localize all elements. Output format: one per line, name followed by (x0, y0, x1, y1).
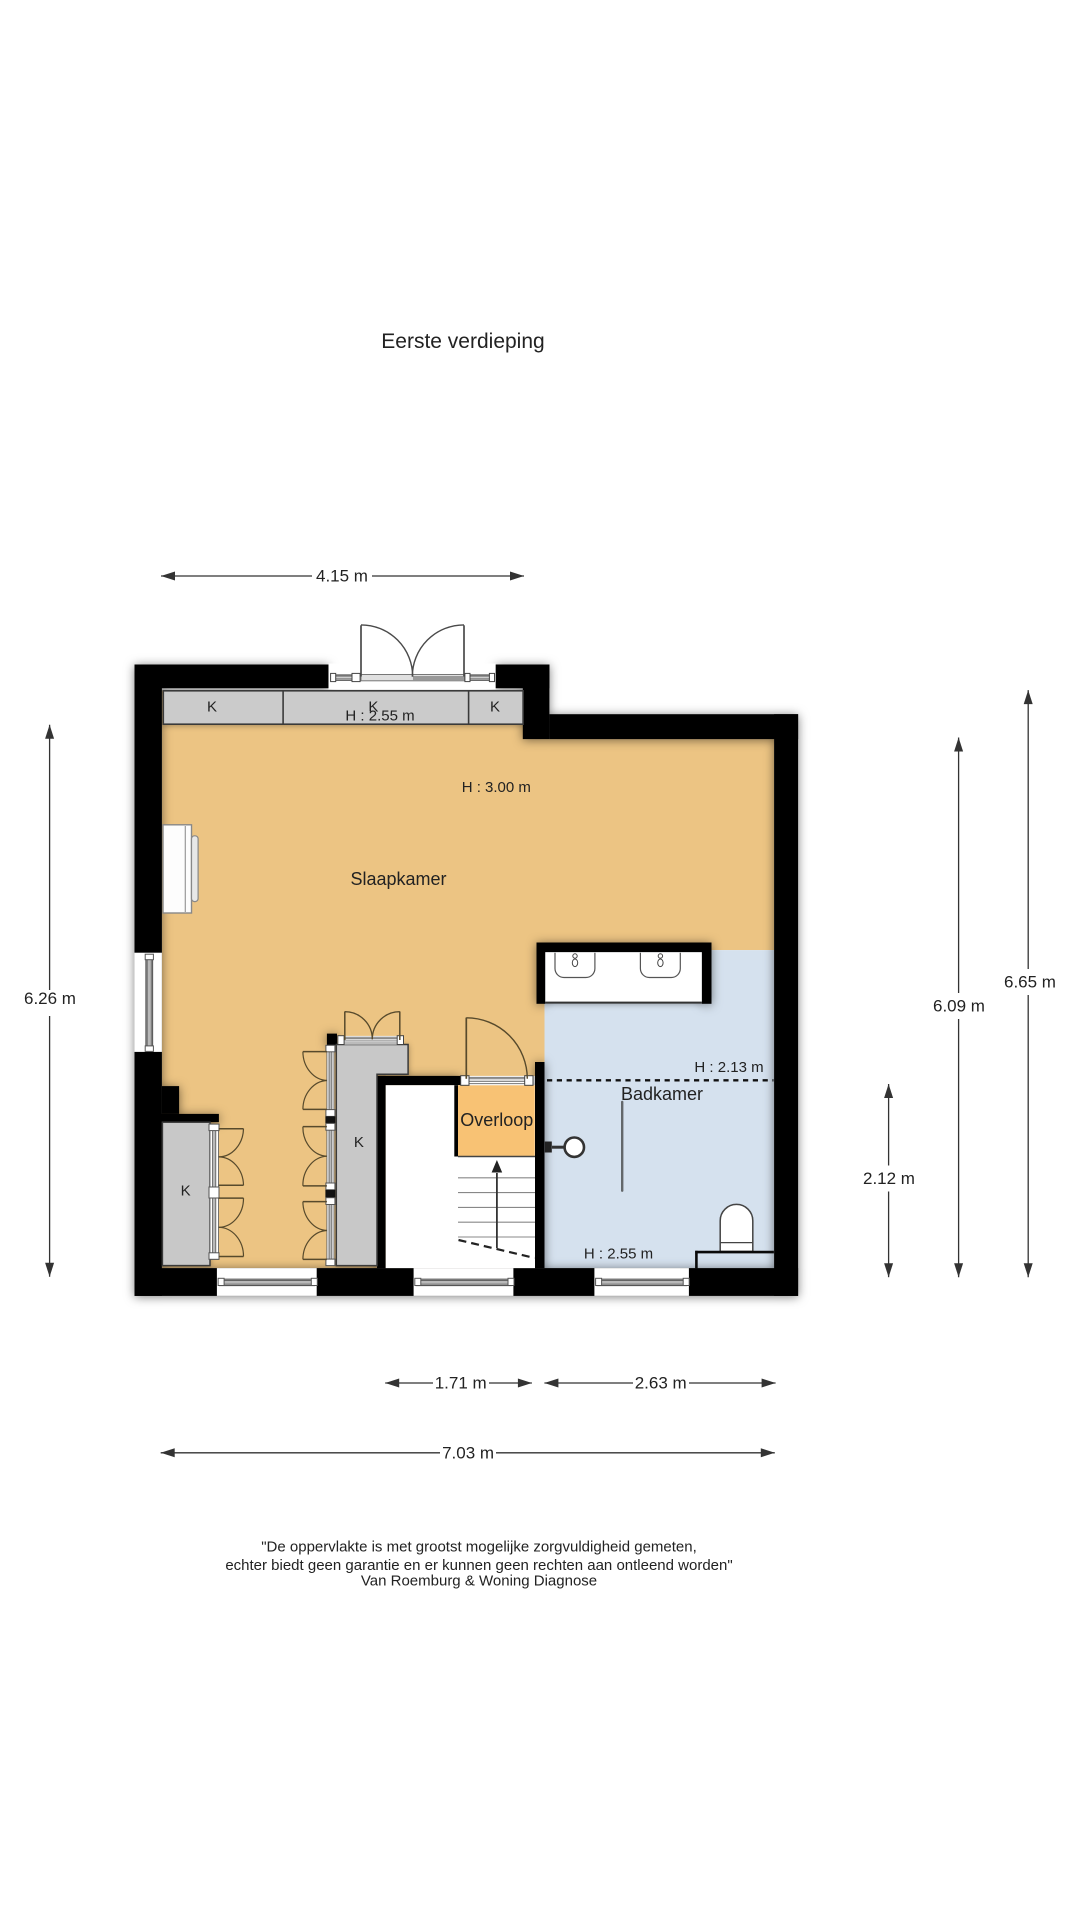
svg-text:2.12 m: 2.12 m (863, 1169, 915, 1188)
svg-text:Van Roemburg & Woning Diagnose: Van Roemburg & Woning Diagnose (361, 1573, 597, 1590)
svg-text:H : 2.55 m: H : 2.55 m (345, 707, 414, 724)
svg-text:6.09 m: 6.09 m (933, 997, 985, 1016)
svg-text:1.71 m: 1.71 m (435, 1374, 487, 1393)
svg-text:K: K (207, 698, 217, 715)
svg-text:6.65 m: 6.65 m (1004, 973, 1056, 992)
svg-text:Eerste verdieping: Eerste verdieping (381, 330, 544, 353)
svg-text:K: K (181, 1182, 191, 1199)
svg-text:K: K (354, 1134, 364, 1151)
svg-text:Badkamer: Badkamer (621, 1084, 703, 1104)
svg-text:H : 2.13 m: H : 2.13 m (694, 1059, 763, 1076)
svg-text:H : 3.00 m: H : 3.00 m (462, 779, 531, 796)
svg-text:H : 2.55 m: H : 2.55 m (584, 1245, 653, 1262)
svg-text:K: K (490, 698, 500, 715)
svg-text:"De oppervlakte is met grootst: "De oppervlakte is met grootst mogelijke… (261, 1539, 697, 1556)
svg-text:Slaapkamer: Slaapkamer (350, 869, 446, 889)
svg-text:7.03 m: 7.03 m (442, 1443, 494, 1462)
svg-text:echter biedt geen garantie en: echter biedt geen garantie en er kunnen … (225, 1557, 732, 1574)
svg-text:4.15 m: 4.15 m (316, 567, 368, 586)
svg-text:2.63 m: 2.63 m (635, 1374, 687, 1393)
svg-text:Overloop: Overloop (460, 1110, 533, 1130)
svg-text:6.26 m: 6.26 m (24, 989, 76, 1008)
